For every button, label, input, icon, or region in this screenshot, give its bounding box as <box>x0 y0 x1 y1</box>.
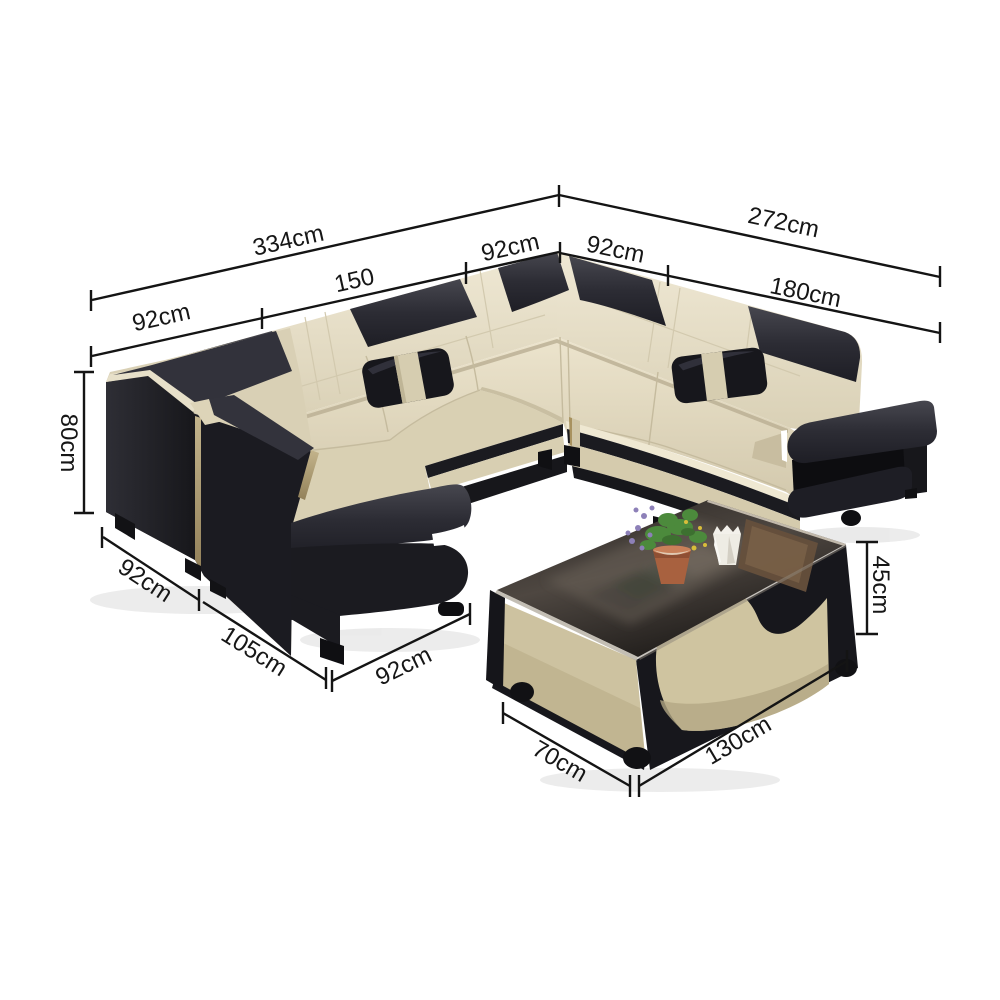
svg-text:45cm: 45cm <box>867 556 894 615</box>
svg-text:80cm: 80cm <box>55 414 82 473</box>
